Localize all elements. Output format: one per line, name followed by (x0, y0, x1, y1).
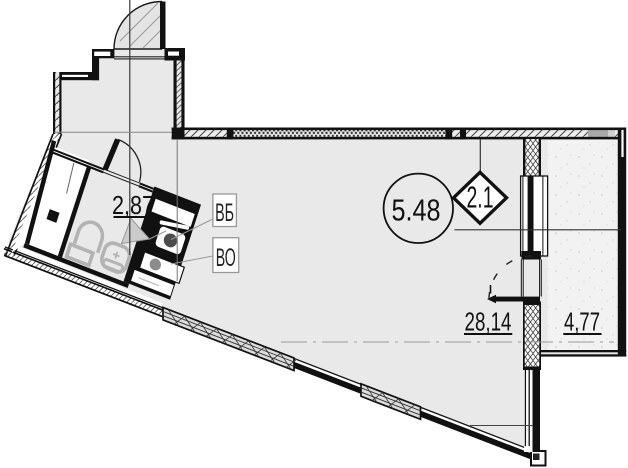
svg-text:ВБ: ВБ (215, 199, 234, 227)
svg-text:2.1: 2.1 (467, 180, 494, 215)
svg-text:ВО: ВО (216, 244, 236, 272)
svg-text:28,14: 28,14 (465, 307, 512, 337)
svg-text:5.48: 5.48 (392, 193, 441, 228)
svg-text:4,77: 4,77 (564, 307, 600, 337)
svg-text:2,87: 2,87 (112, 190, 154, 220)
